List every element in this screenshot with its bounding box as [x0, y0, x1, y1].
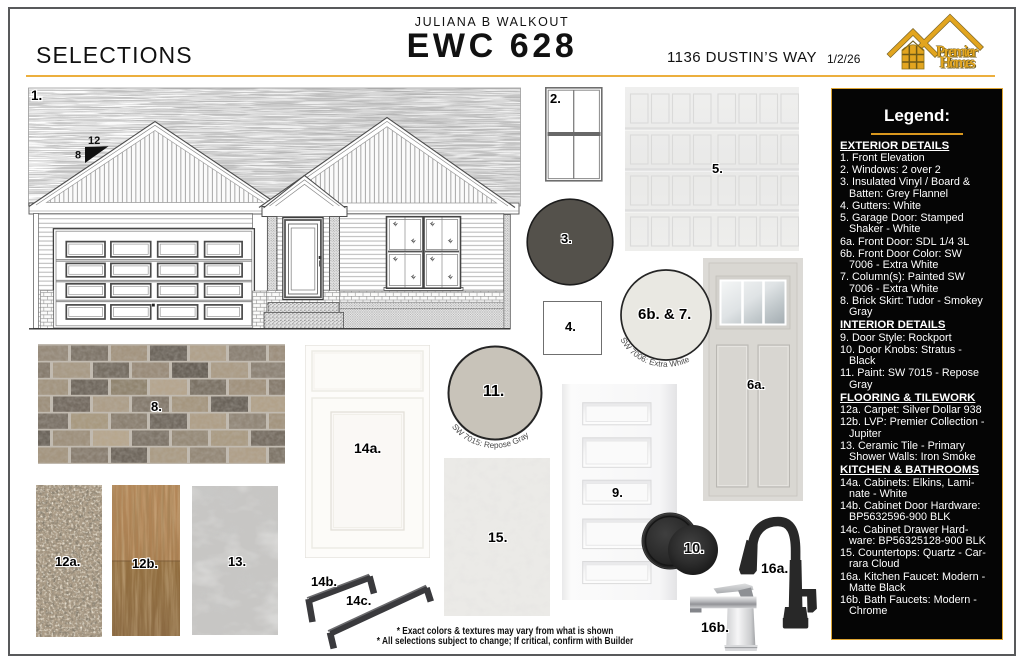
- svg-text:1.: 1.: [31, 88, 42, 103]
- svg-text:8: 8: [75, 150, 81, 162]
- svg-text:Homes: Homes: [940, 55, 976, 72]
- svg-text:12: 12: [88, 135, 100, 147]
